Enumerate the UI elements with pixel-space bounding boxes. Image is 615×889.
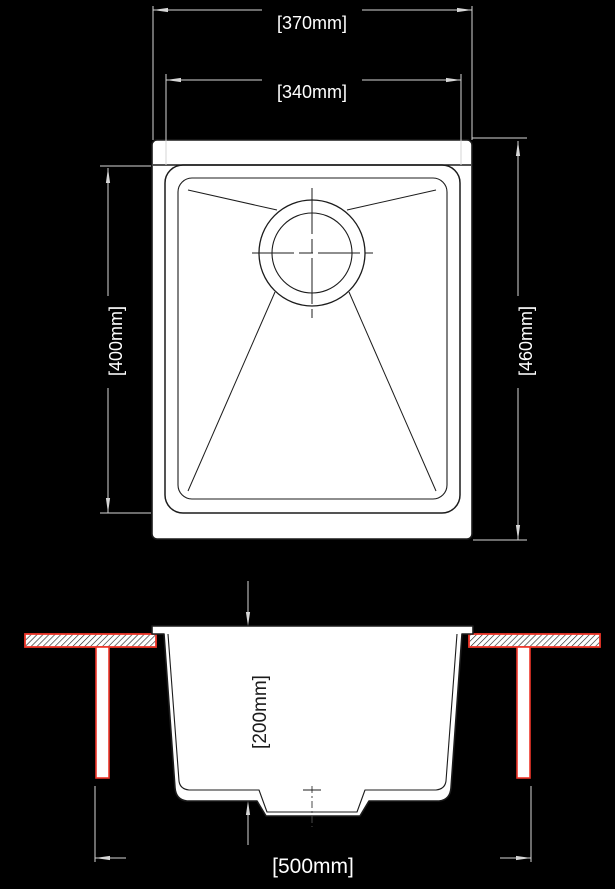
- cabinet-panel-right: [517, 647, 530, 778]
- dimension-label-500: [500mm]: [272, 855, 354, 878]
- dimension-label-370: [370mm]: [277, 13, 347, 33]
- dimension-label-200: [200mm]: [250, 675, 271, 749]
- dimension-label-400: [400mm]: [106, 306, 126, 376]
- sink-drawing-canvas: [370mm] [340mm] [400mm] [460mm]: [0, 0, 615, 889]
- plan-view: [152, 140, 472, 539]
- dimension-label-460: [460mm]: [516, 306, 536, 376]
- cabinet-panel-left: [96, 647, 109, 778]
- dimension-label-340: [340mm]: [277, 82, 347, 102]
- countertop-left: [25, 634, 156, 647]
- countertop-right: [469, 634, 600, 647]
